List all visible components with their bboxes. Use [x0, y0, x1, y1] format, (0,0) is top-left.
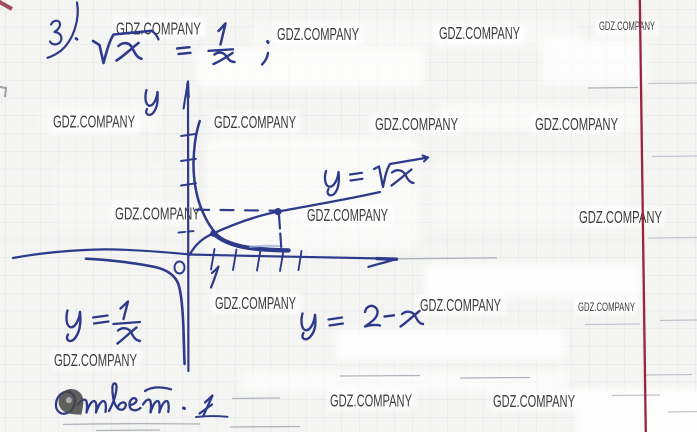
svg-text:GDZ.COMPANY: GDZ.COMPANY — [599, 21, 655, 33]
svg-text:GDZ.COMPANY: GDZ.COMPANY — [330, 391, 412, 411]
svg-text:GDZ.COMPANY: GDZ.COMPANY — [214, 112, 296, 132]
svg-text:GDZ.COMPANY: GDZ.COMPANY — [307, 205, 388, 225]
svg-text:GDZ.COMPANY: GDZ.COMPANY — [215, 293, 296, 313]
svg-text:GDZ.COMPANY: GDZ.COMPANY — [116, 19, 201, 39]
svg-text:GDZ.COMPANY: GDZ.COMPANY — [420, 295, 501, 315]
svg-text:GDZ.COMPANY: GDZ.COMPANY — [277, 24, 359, 44]
svg-text:GDZ.COMPANY: GDZ.COMPANY — [375, 114, 458, 134]
svg-text:GDZ.COMPANY: GDZ.COMPANY — [53, 112, 135, 132]
svg-text:GDZ.COMPANY: GDZ.COMPANY — [439, 23, 520, 43]
svg-text:GDZ.COMPANY: GDZ.COMPANY — [535, 114, 618, 134]
svg-text:GDZ.COMPANY: GDZ.COMPANY — [493, 391, 575, 411]
svg-text:GDZ.COMPANY: GDZ.COMPANY — [579, 207, 662, 227]
svg-text:GDZ.COMPANY: GDZ.COMPANY — [54, 350, 137, 370]
svg-text:GDZ.COMPANY: GDZ.COMPANY — [578, 302, 635, 314]
